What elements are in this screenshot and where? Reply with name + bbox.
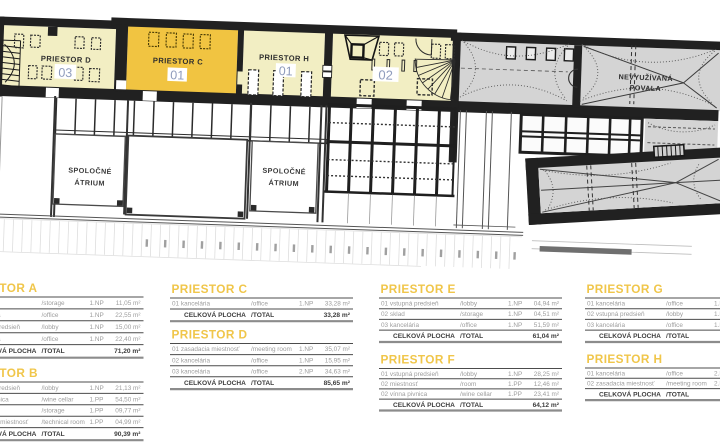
svg-text:1.NP: 1.NP xyxy=(90,385,104,392)
svg-text:CELKOVÁ PLOCHA: CELKOVÁ PLOCHA xyxy=(599,331,661,340)
svg-text:11,05 m²: 11,05 m² xyxy=(116,300,141,307)
svg-text:/office: /office xyxy=(251,301,268,308)
svg-text:1.PP: 1.PP xyxy=(90,396,104,403)
svg-text:/storage: /storage xyxy=(42,408,66,415)
svg-text:/storage: /storage xyxy=(460,311,484,318)
svg-text:1.NP: 1.NP xyxy=(714,322,720,329)
svg-text:/TOTAL: /TOTAL xyxy=(666,333,689,340)
svg-text:/storage: /storage xyxy=(42,300,66,307)
svg-text:02: 02 xyxy=(378,67,393,82)
svg-text:12,46 m²: 12,46 m² xyxy=(534,381,559,388)
svg-text:22,40 m²: 22,40 m² xyxy=(115,336,140,343)
svg-text:01: 01 xyxy=(170,68,184,82)
svg-text:/TOTAL: /TOTAL xyxy=(251,380,274,387)
svg-text:CELKOVÁ PLOCHA: CELKOVÁ PLOCHA xyxy=(184,310,246,319)
svg-text:1.PP: 1.PP xyxy=(508,381,522,388)
svg-text:/office: /office xyxy=(460,322,477,329)
svg-text:28,25 m²: 28,25 m² xyxy=(534,371,559,378)
svg-text:35,07 m²: 35,07 m² xyxy=(325,346,350,353)
svg-text:15,95 m²: 15,95 m² xyxy=(325,357,350,364)
svg-text:01 vstupná predsieň: 01 vstupná predsieň xyxy=(0,385,21,392)
svg-text:/office: /office xyxy=(42,312,59,319)
svg-text:15,00 m²: 15,00 m² xyxy=(115,324,140,331)
svg-text:PRIESTOR H: PRIESTOR H xyxy=(259,53,310,64)
svg-text:1.NP: 1.NP xyxy=(299,357,313,364)
svg-text:NEVYUŽÍVANÁ: NEVYUŽÍVANÁ xyxy=(618,72,673,83)
svg-text:34,63 m²: 34,63 m² xyxy=(325,369,350,376)
svg-text:02 zasadacia miestnosť: 02 zasadacia miestnosť xyxy=(587,381,655,388)
svg-text:02 kancelária: 02 kancelária xyxy=(172,357,210,364)
svg-text:04,94 m²: 04,94 m² xyxy=(534,301,559,308)
svg-text:PRIESTOR E: PRIESTOR E xyxy=(381,282,456,296)
svg-text:1.NP: 1.NP xyxy=(508,322,522,329)
svg-text:02 sklad: 02 sklad xyxy=(381,311,405,318)
svg-text:1.NP: 1.NP xyxy=(90,300,104,307)
svg-text:64,12 m²: 64,12 m² xyxy=(533,402,560,409)
svg-text:51,59 m²: 51,59 m² xyxy=(534,322,559,329)
svg-text:1.NP: 1.NP xyxy=(90,324,104,331)
svg-text:03 kancelária: 03 kancelária xyxy=(172,369,210,376)
svg-text:1.PP: 1.PP xyxy=(508,391,522,398)
svg-text:1.NP: 1.NP xyxy=(508,371,522,378)
svg-text:09,77 m²: 09,77 m² xyxy=(115,408,140,415)
svg-text:CELKOVÁ PLOCHA: CELKOVÁ PLOCHA xyxy=(0,429,37,438)
svg-text:03: 03 xyxy=(58,66,72,80)
svg-text:02 vstupná predsieň: 02 vstupná predsieň xyxy=(587,311,645,318)
svg-text:1.NP: 1.NP xyxy=(508,311,522,318)
svg-text:22,55 m²: 22,55 m² xyxy=(115,312,140,319)
svg-text:02 vínna pivnica: 02 vínna pivnica xyxy=(0,396,9,403)
svg-text:01 vstupná predsieň: 01 vstupná predsieň xyxy=(381,371,439,378)
svg-text:01 kancelária: 01 kancelária xyxy=(587,370,625,377)
svg-text:CELKOVÁ PLOCHA: CELKOVÁ PLOCHA xyxy=(393,400,455,409)
svg-text:/technical room: /technical room xyxy=(42,419,85,426)
svg-text:/lobby: /lobby xyxy=(460,301,478,308)
svg-text:PRIESTOR C: PRIESTOR C xyxy=(172,282,248,296)
svg-text:2.NP: 2.NP xyxy=(714,381,720,388)
svg-text:/TOTAL: /TOTAL xyxy=(42,431,65,438)
svg-text:ÁTRIUM: ÁTRIUM xyxy=(74,178,105,188)
svg-text:03 kancelária: 03 kancelária xyxy=(587,322,625,329)
svg-text:/lobby: /lobby xyxy=(42,324,60,331)
svg-text:SPOLOČNÉ: SPOLOČNÉ xyxy=(262,166,306,177)
svg-text:/lobby: /lobby xyxy=(42,385,60,392)
svg-text:85,65 m²: 85,65 m² xyxy=(324,380,351,387)
svg-text:1.NP: 1.NP xyxy=(508,301,522,308)
svg-text:61,04 m²: 61,04 m² xyxy=(533,333,560,340)
svg-text:2.NP: 2.NP xyxy=(714,370,720,377)
svg-text:04 technická miestnosť: 04 technická miestnosť xyxy=(0,419,29,426)
svg-text:1.PP: 1.PP xyxy=(90,419,104,426)
svg-text:/TOTAL: /TOTAL xyxy=(251,312,274,319)
svg-text:71,20 m²: 71,20 m² xyxy=(114,348,141,355)
svg-text:CELKOVÁ PLOCHA: CELKOVÁ PLOCHA xyxy=(184,378,246,387)
svg-text:1.NP: 1.NP xyxy=(299,301,313,308)
svg-text:PRIESTOR B: PRIESTOR B xyxy=(0,366,38,380)
svg-text:1.NP: 1.NP xyxy=(714,301,720,308)
svg-text:/meeting room: /meeting room xyxy=(666,381,707,388)
svg-text:PRIESTOR H: PRIESTOR H xyxy=(587,352,663,366)
svg-text:/TOTAL: /TOTAL xyxy=(460,402,483,409)
svg-text:/room: /room xyxy=(460,381,476,388)
svg-text:1.NP: 1.NP xyxy=(90,336,104,343)
svg-text:01 zasadacia miestnosť: 01 zasadacia miestnosť xyxy=(172,346,240,353)
svg-text:/lobby: /lobby xyxy=(460,371,478,378)
svg-text:/wine cellar: /wine cellar xyxy=(42,396,75,403)
svg-text:23,41 m²: 23,41 m² xyxy=(534,391,559,398)
svg-text:1.NP: 1.NP xyxy=(714,311,720,318)
svg-text:03 vstupná predsieň: 03 vstupná predsieň xyxy=(0,324,21,331)
svg-text:ÁTRIUM: ÁTRIUM xyxy=(268,178,299,188)
svg-text:21,13 m²: 21,13 m² xyxy=(115,385,140,392)
svg-text:/wine cellar: /wine cellar xyxy=(460,391,493,398)
svg-text:PRIESTOR F: PRIESTOR F xyxy=(381,353,456,367)
svg-text:01 kancelária: 01 kancelária xyxy=(172,301,210,308)
svg-text:/lobby: /lobby xyxy=(666,311,684,318)
svg-text:POVALA: POVALA xyxy=(630,83,662,93)
svg-text:/office: /office xyxy=(42,336,59,343)
svg-text:/office: /office xyxy=(666,322,683,329)
svg-text:/TOTAL: /TOTAL xyxy=(666,391,689,398)
svg-text:1.NP: 1.NP xyxy=(90,312,104,319)
svg-text:SPOLOČNÉ: SPOLOČNÉ xyxy=(68,165,112,176)
svg-text:PRIESTOR A: PRIESTOR A xyxy=(0,281,38,295)
svg-text:01 vstupná predsieň: 01 vstupná predsieň xyxy=(381,301,439,308)
svg-text:/office: /office xyxy=(251,369,268,376)
svg-text:01 kancelária: 01 kancelária xyxy=(587,301,625,308)
svg-text:PRIESTOR G: PRIESTOR G xyxy=(587,282,664,296)
svg-text:54,50 m²: 54,50 m² xyxy=(115,396,140,403)
svg-text:02 miestnosť: 02 miestnosť xyxy=(381,381,418,388)
svg-text:CELKOVÁ PLOCHA: CELKOVÁ PLOCHA xyxy=(599,389,661,398)
svg-text:33,28 m²: 33,28 m² xyxy=(324,312,351,319)
svg-text:03 kancelária: 03 kancelária xyxy=(381,322,419,329)
svg-text:/office: /office xyxy=(251,357,268,364)
svg-text:/TOTAL: /TOTAL xyxy=(460,333,483,340)
svg-text:2.NP: 2.NP xyxy=(299,369,313,376)
svg-text:90,39 m²: 90,39 m² xyxy=(114,431,141,438)
svg-text:/office: /office xyxy=(666,301,683,308)
svg-text:CELKOVÁ PLOCHA: CELKOVÁ PLOCHA xyxy=(393,331,455,340)
svg-text:04,51 m²: 04,51 m² xyxy=(534,311,559,318)
svg-text:33,28 m²: 33,28 m² xyxy=(325,301,350,308)
svg-text:/office: /office xyxy=(666,370,683,377)
svg-text:/TOTAL: /TOTAL xyxy=(42,348,65,355)
svg-text:02 vínna pivnica: 02 vínna pivnica xyxy=(381,391,428,398)
svg-text:01: 01 xyxy=(278,64,292,78)
svg-text:/meeting room: /meeting room xyxy=(251,346,292,353)
svg-text:CELKOVÁ PLOCHA: CELKOVÁ PLOCHA xyxy=(0,346,37,355)
svg-text:PRIESTOR C: PRIESTOR C xyxy=(153,56,204,67)
svg-text:PRIESTOR D: PRIESTOR D xyxy=(41,54,92,65)
svg-text:04,99 m²: 04,99 m² xyxy=(115,419,140,426)
svg-text:1.NP: 1.NP xyxy=(299,346,313,353)
svg-text:1.PP: 1.PP xyxy=(90,408,104,415)
svg-text:PRIESTOR D: PRIESTOR D xyxy=(172,328,248,342)
